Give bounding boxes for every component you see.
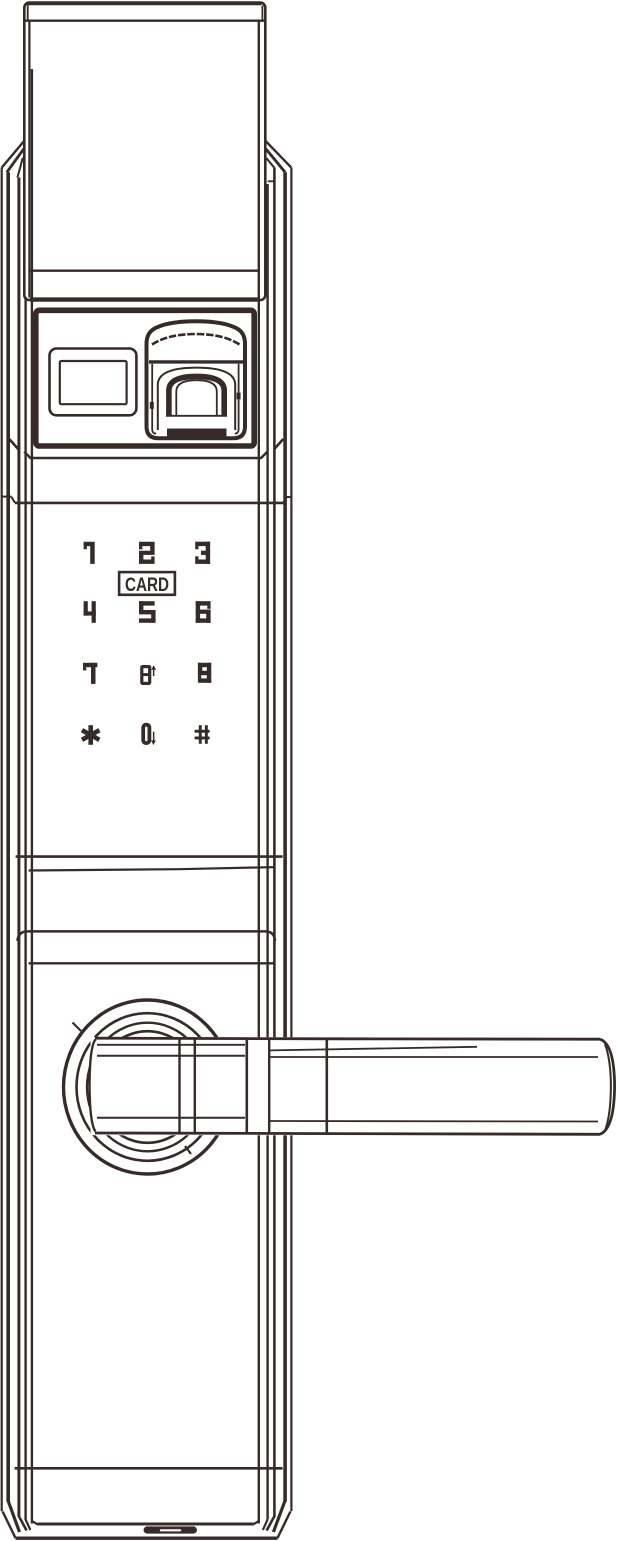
svg-text:CARD: CARD: [125, 574, 169, 596]
